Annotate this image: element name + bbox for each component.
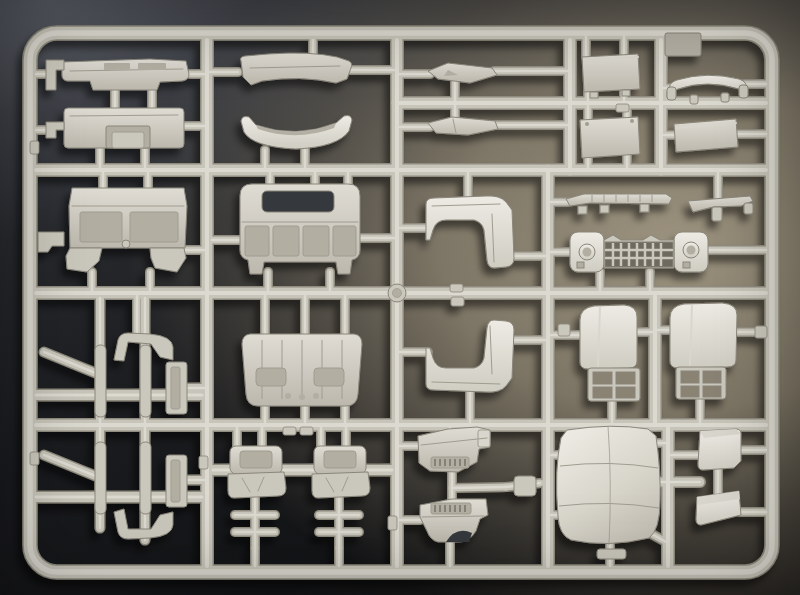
cab-front-panel bbox=[240, 184, 360, 274]
dashboard-bracket bbox=[46, 60, 64, 90]
pillar-lower-a bbox=[95, 442, 106, 514]
cowl-strip bbox=[688, 196, 753, 221]
front-fender-left bbox=[426, 320, 514, 392]
gate-tab bbox=[450, 284, 463, 292]
quarter-panel-left bbox=[580, 305, 640, 401]
gate-tab bbox=[199, 456, 208, 469]
flat-panel-c bbox=[674, 119, 738, 152]
pillar-upper-b bbox=[140, 345, 151, 417]
cab-roof-panel bbox=[242, 334, 362, 406]
radiator-grille bbox=[570, 232, 708, 272]
sill-strip bbox=[566, 194, 672, 214]
flat-panel-b bbox=[580, 117, 640, 158]
cab-floor-panel bbox=[66, 188, 187, 272]
jog-tab bbox=[514, 476, 536, 496]
gate-tab bbox=[300, 427, 313, 435]
gate-tab bbox=[283, 427, 296, 435]
front-bumper bbox=[241, 116, 352, 150]
ejector-boss-ring bbox=[393, 289, 402, 298]
gate-tab bbox=[451, 297, 464, 306]
louver-panel-upper bbox=[418, 427, 490, 472]
hood-gate-tab bbox=[597, 549, 626, 559]
gate-tab bbox=[616, 104, 629, 112]
pillar-upper-a bbox=[95, 345, 106, 417]
windshield-header bbox=[241, 53, 352, 85]
flat-panel-a bbox=[582, 54, 640, 98]
bulkhead-panel bbox=[64, 108, 184, 148]
sprue-photo bbox=[0, 0, 800, 595]
floor-bracket bbox=[38, 232, 64, 252]
center-boss bbox=[388, 284, 406, 302]
box-panel-top bbox=[698, 429, 741, 470]
gate-plate bbox=[665, 33, 701, 56]
seat-left bbox=[228, 446, 286, 498]
louver-panel-lower bbox=[420, 499, 488, 542]
angle-strip-b bbox=[428, 117, 498, 135]
gate-tab bbox=[30, 452, 39, 465]
hood-panel bbox=[557, 426, 661, 545]
bulkhead-bracket bbox=[46, 122, 64, 138]
gate-tab bbox=[755, 326, 767, 338]
angle-strip-a bbox=[428, 63, 497, 83]
box-panel-bottom bbox=[696, 491, 741, 525]
sprue-frame bbox=[30, 33, 772, 572]
channel-upper bbox=[166, 362, 187, 414]
channel-lower bbox=[166, 455, 187, 507]
seat-right bbox=[312, 446, 370, 498]
quarter-panel-right bbox=[670, 303, 737, 399]
dashboard-panel bbox=[62, 59, 189, 90]
front-fender-right bbox=[426, 196, 514, 268]
pillar-lower-b bbox=[140, 442, 151, 514]
gate-tab bbox=[388, 516, 397, 530]
gate-tab bbox=[30, 141, 39, 154]
sprue-svg bbox=[0, 0, 800, 595]
gate-tab bbox=[558, 324, 570, 336]
